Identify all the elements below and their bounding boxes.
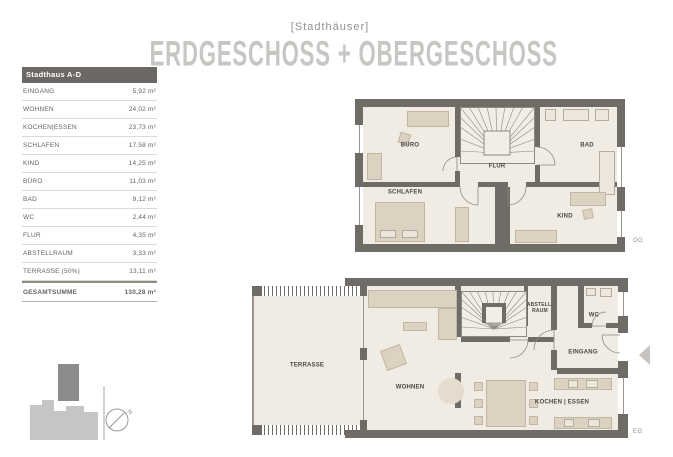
table-row: WC2,44 m²: [22, 209, 157, 227]
room-label-abstellraum: ABSTELL- RAUM: [527, 302, 553, 315]
row-value: 130,28 m²: [125, 289, 156, 296]
area-table: Stadthaus A-D EINGANG5,92 m² WOHNEN24,02…: [22, 67, 157, 302]
row-value: 13,11 m²: [129, 268, 156, 275]
door-swings: [252, 278, 630, 438]
table-row: FLUR4,35 m²: [22, 227, 157, 245]
room-label-flur: FLUR: [489, 163, 506, 171]
row-value: 14,25 m²: [129, 160, 156, 167]
row-label: WOHNEN: [23, 106, 54, 113]
compass: N: [106, 409, 133, 431]
row-label: BÜRO: [23, 178, 43, 185]
row-value: 17,58 m²: [129, 142, 156, 149]
highlighted-unit: [58, 364, 79, 401]
compass-needle: [109, 412, 125, 428]
floor-tag-og: OG: [633, 238, 643, 244]
floorplan-erdgeschoss: TERRASSE WOHNEN ABSTELL- RAUM WC EINGANG…: [252, 278, 630, 438]
row-value: 2,44 m²: [133, 214, 156, 221]
table-row: ABSTELLRAUM3,33 m²: [22, 245, 157, 263]
room-label-wc: WC: [589, 312, 599, 320]
room-label-terrasse: TERRASSE: [290, 362, 324, 370]
entry-arrow: [639, 345, 650, 365]
row-value: 24,02 m²: [129, 106, 156, 113]
row-label: GESAMTSUMME: [23, 289, 77, 296]
row-label: TERRASSE (50%): [23, 268, 80, 275]
row-value: 3,33 m²: [133, 250, 156, 257]
row-label: FLUR: [23, 232, 41, 239]
row-value: 9,12 m²: [133, 196, 156, 203]
floorplan-obergeschoss: BÜRO FLUR BAD SCHLAFEN KIND: [355, 99, 625, 252]
table-row: BAD9,12 m²: [22, 191, 157, 209]
row-label: BAD: [23, 196, 37, 203]
row-value: 5,92 m²: [133, 88, 156, 95]
table-row: TERRASSE (50%)13,11 m²: [22, 263, 157, 281]
area-table-title: Stadthaus A-D: [22, 67, 157, 83]
floor-tag-eg: EG: [633, 429, 643, 435]
page-title: ERDGESCHOSS + OBERGESCHOSS: [150, 34, 511, 75]
table-row: WOHNEN24,02 m²: [22, 101, 157, 119]
row-value: 11,03 m²: [129, 178, 156, 185]
table-row: EINGANG5,92 m²: [22, 83, 157, 101]
row-label: KIND: [23, 160, 39, 167]
room-label-buero: BÜRO: [401, 142, 419, 150]
series-label: [Stadthäuser]: [160, 21, 500, 33]
door-swings: [355, 99, 625, 252]
site-footprint: [30, 400, 98, 440]
table-row: BÜRO11,03 m²: [22, 173, 157, 191]
row-label: WC: [23, 214, 34, 221]
room-label-schlafen: SCHLAFEN: [388, 189, 422, 197]
brochure-page: [Stadthäuser] ERDGESCHOSS + OBERGESCHOSS…: [0, 0, 673, 457]
room-label-kind: KIND: [557, 213, 572, 221]
table-row: SCHLAFEN17,58 m²: [22, 137, 157, 155]
row-label: ABSTELLRAUM: [23, 250, 73, 257]
row-label: SCHLAFEN: [23, 142, 59, 149]
table-row: KOCHEN|ESSEN23,73 m²: [22, 119, 157, 137]
room-label-kochen-essen: KOCHEN | ESSEN: [535, 399, 589, 407]
row-label: KOCHEN|ESSEN: [23, 124, 77, 131]
table-row: KIND14,25 m²: [22, 155, 157, 173]
row-value: 4,35 m²: [133, 232, 156, 239]
row-value: 23,73 m²: [129, 124, 156, 131]
room-label-bad: BAD: [580, 142, 594, 150]
room-label-eingang: EINGANG: [568, 349, 597, 357]
site-plan: N: [18, 356, 148, 451]
table-total-row: GESAMTSUMME130,28 m²: [22, 281, 157, 302]
row-label: EINGANG: [23, 88, 54, 95]
room-label-wohnen: WOHNEN: [396, 384, 425, 392]
